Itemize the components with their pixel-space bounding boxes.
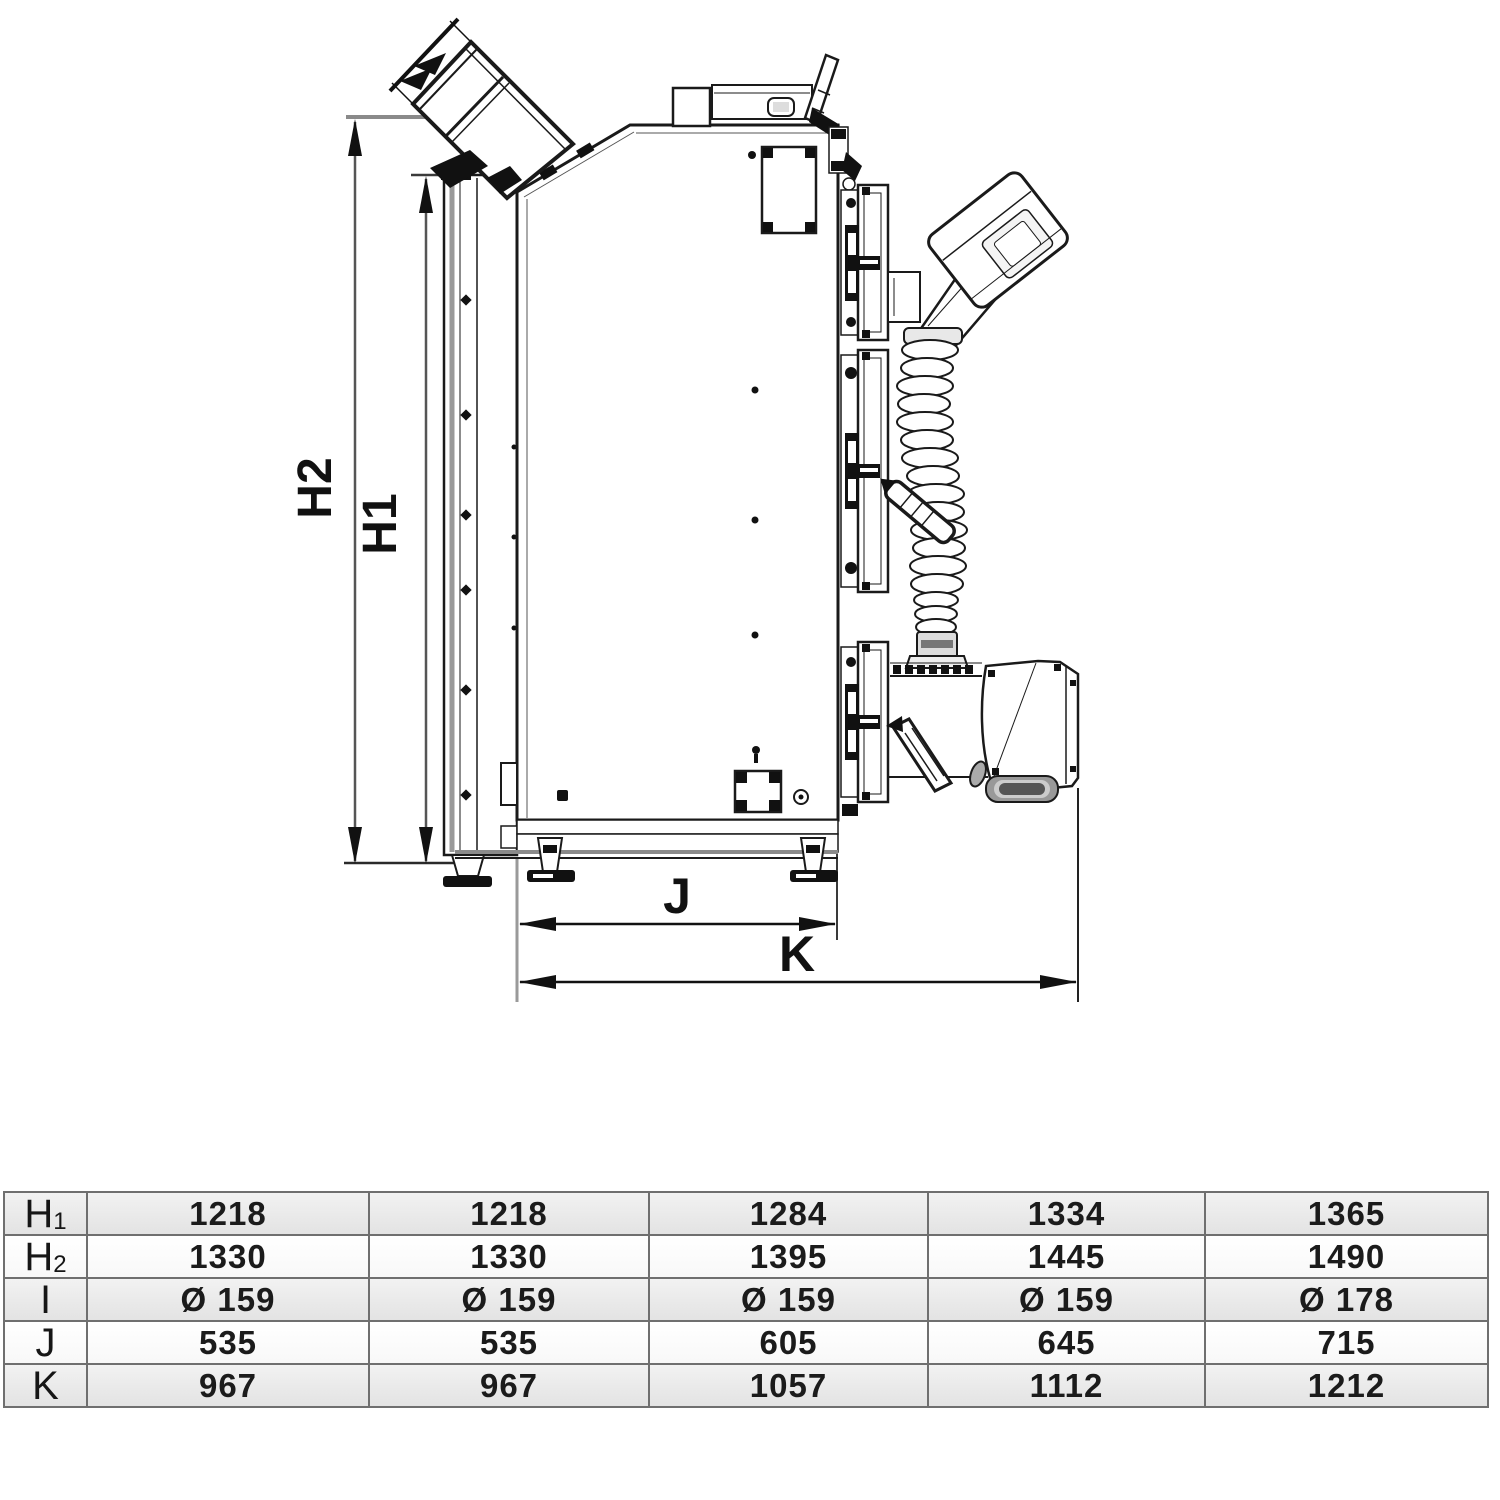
table-row-j: J 535 535 605 645 715 — [4, 1321, 1488, 1364]
table-cell: 645 — [928, 1321, 1205, 1364]
table-row-h2: H2 1330 1330 1395 1445 1490 — [4, 1235, 1488, 1278]
row-label-i: I — [4, 1278, 87, 1321]
table-cell: Ø 159 — [87, 1278, 369, 1321]
page: H2 H1 J K H1 12 — [0, 0, 1500, 1500]
table-cell: 1445 — [928, 1235, 1205, 1278]
table-cell: 1057 — [649, 1364, 928, 1407]
table-cell: 605 — [649, 1321, 928, 1364]
row-label-h1: H1 — [4, 1192, 87, 1235]
dimension-h2: H2 — [289, 119, 362, 864]
dimension-k: K — [519, 926, 1077, 989]
table-row-k: K 967 967 1057 1112 1212 — [4, 1364, 1488, 1407]
table-cell: Ø 159 — [369, 1278, 649, 1321]
dimension-h1: H1 — [354, 176, 433, 864]
table-cell: 1212 — [1205, 1364, 1488, 1407]
burner-handle — [886, 716, 951, 791]
dimensions-table: H1 1218 1218 1284 1334 1365 H2 1330 1330… — [3, 1191, 1489, 1408]
h1-label: H1 — [354, 493, 407, 554]
door-middle — [841, 350, 888, 592]
table-cell: 967 — [87, 1364, 369, 1407]
table-row-i: I Ø 159 Ø 159 Ø 159 Ø 159 Ø 178 — [4, 1278, 1488, 1321]
table-cell: 715 — [1205, 1321, 1488, 1364]
k-label: K — [779, 926, 815, 982]
door-upper — [841, 185, 888, 340]
table-cell: 1490 — [1205, 1235, 1488, 1278]
table-cell: 1284 — [649, 1192, 928, 1235]
row-label-k: K — [4, 1364, 87, 1407]
boiler-diagram: H2 H1 J K — [0, 0, 1500, 1165]
table-cell: 1330 — [369, 1235, 649, 1278]
table-cell: Ø 178 — [1205, 1278, 1488, 1321]
table-cell: 535 — [369, 1321, 649, 1364]
table-cell: Ø 159 — [928, 1278, 1205, 1321]
table-cell: 1365 — [1205, 1192, 1488, 1235]
table-cell: Ø 159 — [649, 1278, 928, 1321]
table-cell: 1218 — [87, 1192, 369, 1235]
table-cell: 1395 — [649, 1235, 928, 1278]
table-cell: 535 — [87, 1321, 369, 1364]
lower-access-square — [735, 771, 781, 812]
table-row-h1: H1 1218 1218 1284 1334 1365 — [4, 1192, 1488, 1235]
row-label-j: J — [4, 1321, 87, 1364]
table-cell: 1330 — [87, 1235, 369, 1278]
door-lower — [841, 642, 888, 816]
table-cell: 1218 — [369, 1192, 649, 1235]
table-cell: 967 — [369, 1364, 649, 1407]
table-cell: 1112 — [928, 1364, 1205, 1407]
row-label-h2: H2 — [4, 1235, 87, 1278]
h2-label: H2 — [289, 457, 342, 518]
j-label: J — [663, 868, 691, 924]
table-cell: 1334 — [928, 1192, 1205, 1235]
